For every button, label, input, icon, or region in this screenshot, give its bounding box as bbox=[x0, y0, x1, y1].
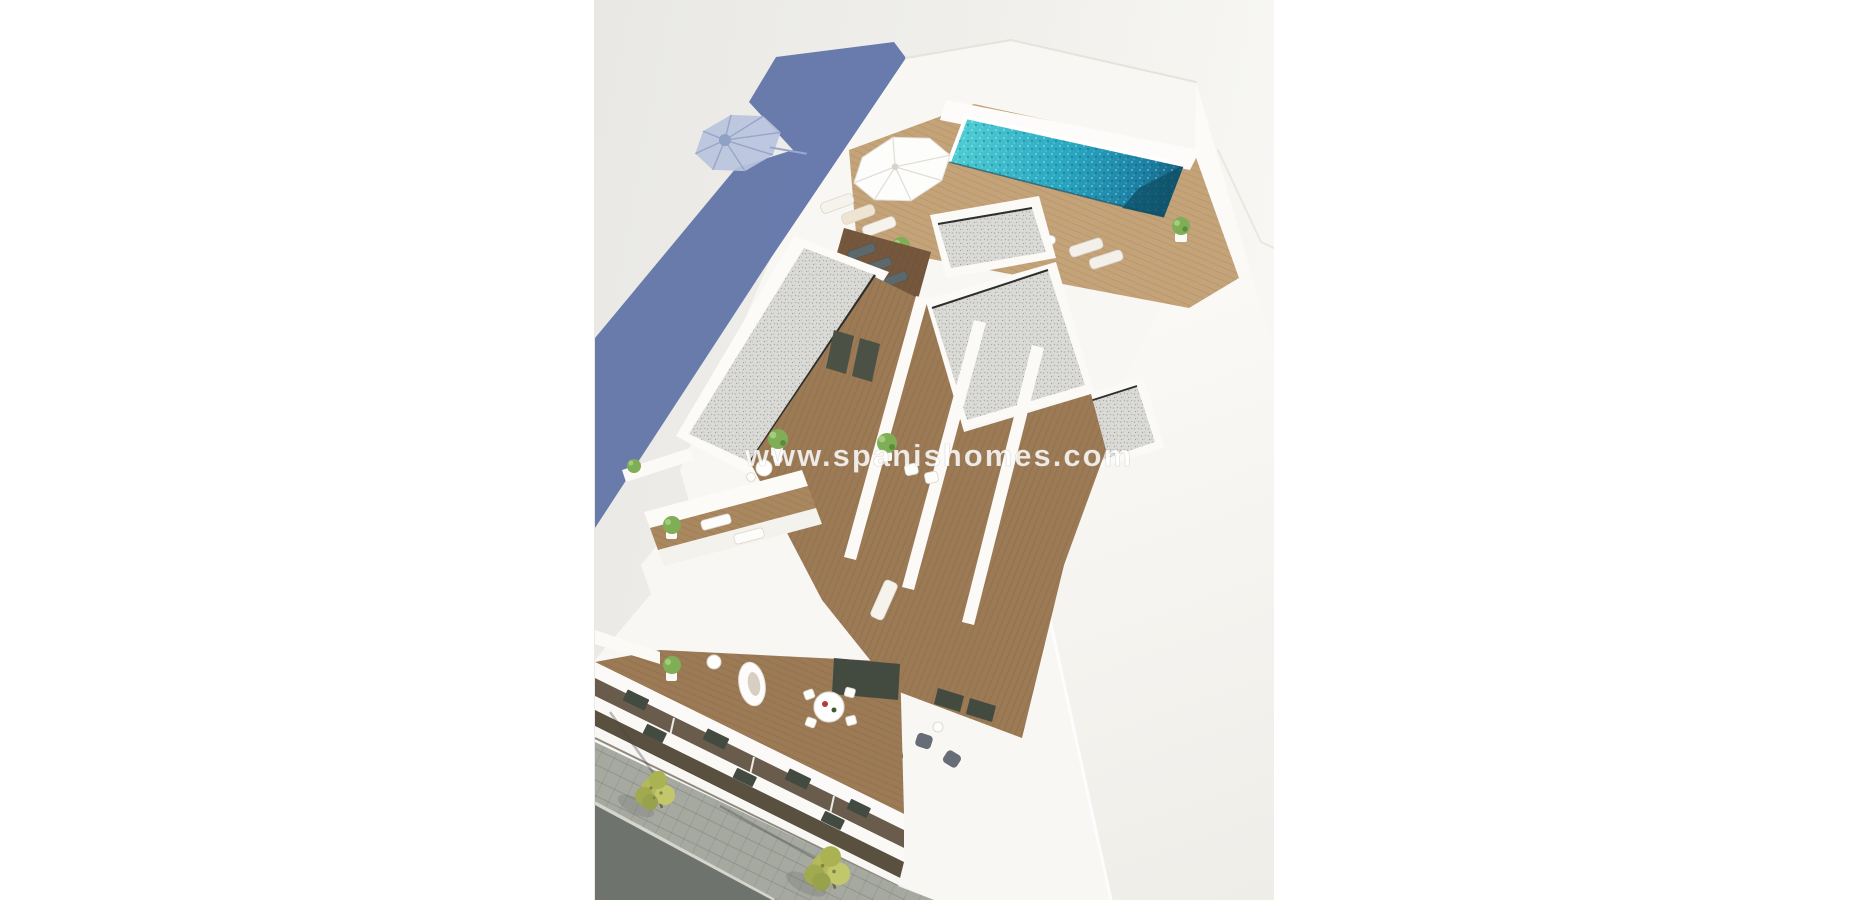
small-table bbox=[707, 655, 721, 669]
render-photo: www.spanishomes.com bbox=[594, 0, 1274, 900]
render-canvas: www.spanishomes.com bbox=[0, 0, 1868, 900]
terrace-windows bbox=[832, 658, 900, 700]
small-plant bbox=[627, 459, 641, 473]
watermark-text: www.spanishomes.com bbox=[744, 438, 1133, 473]
coffee-table bbox=[933, 722, 943, 732]
